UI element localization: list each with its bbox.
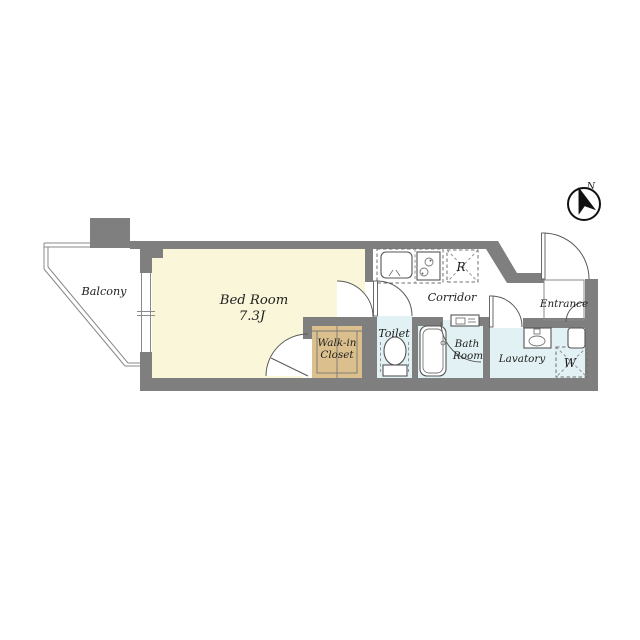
wall-diagonal <box>486 241 517 283</box>
floor-plan: N Balcony Bed Room 7.3J Walk-in Closet T… <box>0 0 640 640</box>
balcony-outline <box>44 243 140 366</box>
toilet-label: Toilet <box>378 327 410 340</box>
wall-toilet-bath-top <box>412 317 443 326</box>
lavatory-door-arc <box>491 296 522 327</box>
bath-label-line2: Room <box>452 350 483 362</box>
corridor-label: Corridor <box>428 291 477 304</box>
entrance-label: Entrance <box>539 298 588 310</box>
lavatory-label: Lavatory <box>498 353 546 365</box>
wall-bath-top-right <box>478 317 490 326</box>
bedroom-area-label: 7.3J <box>239 309 266 324</box>
kitchen-counter <box>377 249 443 283</box>
toilet-bowl-icon <box>384 337 406 365</box>
kitchen-sink-icon <box>381 252 412 278</box>
wall-top <box>130 241 487 249</box>
balcony-rail <box>44 269 125 366</box>
washbasin-fixture <box>524 328 551 348</box>
wall-left-upper <box>140 249 152 273</box>
balcony-label: Balcony <box>81 285 128 298</box>
wall-toilet-right <box>412 326 418 378</box>
wall-closet-top <box>303 317 377 326</box>
wall-corner-step <box>152 249 163 258</box>
toilet-tank-icon <box>383 365 407 376</box>
toilet-door-swing <box>377 281 412 316</box>
bath-label-line1: Bath <box>454 338 480 350</box>
washbasin-icon <box>524 328 551 348</box>
bedroom-door-leaf <box>374 281 378 316</box>
wall-right <box>585 279 598 378</box>
burner-dot <box>422 273 424 275</box>
wall-bath-lavatory <box>483 326 490 378</box>
entrance-door-leaf <box>542 233 546 279</box>
bedroom-label: Bed Room <box>219 293 288 308</box>
floor-plan-canvas: N Balcony Bed Room 7.3J Walk-in Closet T… <box>0 0 640 640</box>
bedroom-door-swing <box>337 281 373 317</box>
compass-north-label: N <box>586 181 596 192</box>
wall-closet-left <box>303 317 312 339</box>
balcony-rail <box>48 267 128 363</box>
burner-dot <box>430 260 432 262</box>
compass: N <box>568 181 600 220</box>
wall-pillar <box>90 218 130 248</box>
bath-counter-fixture <box>451 315 479 326</box>
shoe-cabinet <box>568 328 585 348</box>
lavatory-door-leaf <box>490 296 494 327</box>
wall-closet-toilet <box>362 326 377 378</box>
closet-label-line2: Closet <box>320 349 354 361</box>
wall-bottom <box>140 378 598 391</box>
refrigerator-label: R <box>455 260 465 274</box>
wall-left-lower <box>140 352 152 378</box>
wall-bedroom-kitchen <box>365 249 373 282</box>
washer-label: W <box>564 356 578 370</box>
closet-label-line1: Walk-in <box>318 337 357 349</box>
entrance-door-arc <box>543 233 589 279</box>
